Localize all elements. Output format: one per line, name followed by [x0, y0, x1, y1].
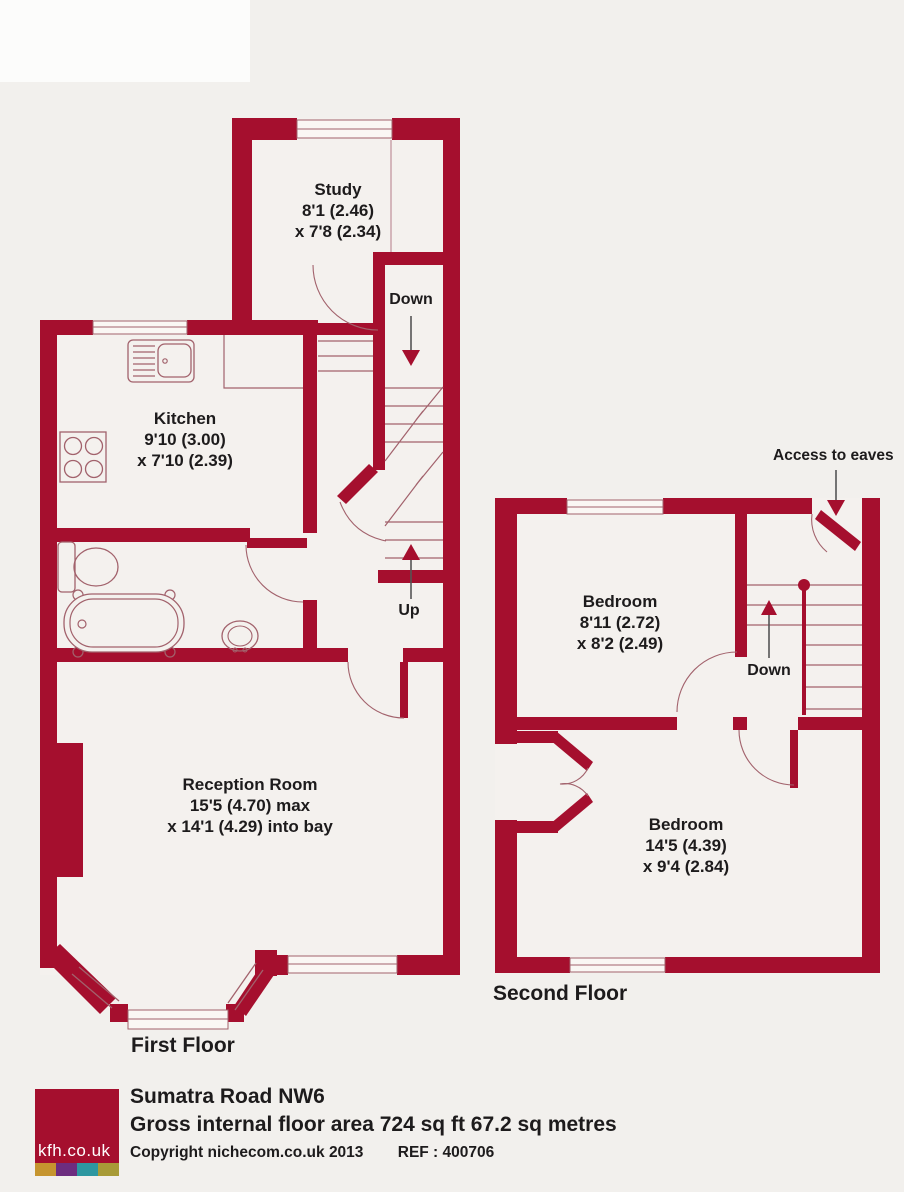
logo-strip-segment — [98, 1163, 119, 1176]
reception-room-label: Reception Room 15'5 (4.70) max x 14'1 (4… — [150, 774, 350, 837]
first-floor-title: First Floor — [131, 1034, 235, 1058]
property-title: Sumatra Road NW6 — [130, 1085, 325, 1109]
kfh-logo: kfh.co.uk — [35, 1089, 119, 1176]
floorplan-drawing — [0, 0, 904, 1192]
kitchen-window — [93, 321, 187, 334]
access-to-eaves-label: Access to eaves — [773, 447, 893, 465]
room-dimensions: x 9'4 (2.84) — [596, 856, 776, 877]
room-dimensions: 9'10 (3.00) — [95, 429, 275, 450]
logo-strip-segment — [77, 1163, 98, 1176]
second-floor-title: Second Floor — [493, 982, 627, 1006]
stairs-down-label-second: Down — [734, 662, 804, 680]
room-name: Kitchen — [95, 408, 275, 429]
reference-number: REF : 400706 — [398, 1144, 495, 1161]
second-floor-plan — [495, 470, 880, 973]
bathtub-icon — [64, 590, 184, 657]
room-dimensions: 8'11 (2.72) — [530, 612, 710, 633]
copyright-text: Copyright nichecom.co.uk 2013 — [130, 1144, 363, 1161]
floor-area-text: Gross internal floor area 724 sq ft 67.2… — [130, 1113, 617, 1137]
room-dimensions: 14'5 (4.39) — [596, 835, 776, 856]
bedroom1-window — [567, 500, 663, 514]
first-floor-plan — [40, 118, 460, 1029]
copyright-line: Copyright nichecom.co.uk 2013 REF : 4007… — [130, 1144, 494, 1162]
kfh-logo-text: kfh.co.uk — [38, 1141, 111, 1161]
room-dimensions: 8'1 (2.46) — [248, 200, 428, 221]
room-name: Bedroom — [596, 814, 776, 835]
bedroom1-room-label: Bedroom 8'11 (2.72) x 8'2 (2.49) — [530, 591, 710, 654]
floorplan-page: Study 8'1 (2.46) x 7'8 (2.34) Kitchen 9'… — [0, 0, 904, 1192]
study-room-label: Study 8'1 (2.46) x 7'8 (2.34) — [248, 179, 428, 242]
bedroom2-room-label: Bedroom 14'5 (4.39) x 9'4 (2.84) — [596, 814, 776, 877]
room-dimensions: x 7'10 (2.39) — [95, 450, 275, 471]
reception-window — [288, 956, 397, 973]
room-dimensions: x 14'1 (4.29) into bay — [150, 816, 350, 837]
kfh-logo-color-strip — [35, 1163, 119, 1176]
room-dimensions: x 8'2 (2.49) — [530, 633, 710, 654]
kfh-logo-square: kfh.co.uk — [35, 1089, 119, 1163]
room-dimensions: x 7'8 (2.34) — [248, 221, 428, 242]
footer: kfh.co.uk Sumatra Road NW6 Gross interna… — [0, 1082, 904, 1192]
room-dimensions: 15'5 (4.70) max — [150, 795, 350, 816]
stairs-up-label: Up — [379, 602, 439, 620]
bedroom2-window — [570, 958, 665, 972]
logo-strip-segment — [35, 1163, 56, 1176]
room-name: Reception Room — [150, 774, 350, 795]
stairs-down-label: Down — [376, 291, 446, 309]
room-name: Study — [248, 179, 428, 200]
room-name: Bedroom — [530, 591, 710, 612]
kitchen-room-label: Kitchen 9'10 (3.00) x 7'10 (2.39) — [95, 408, 275, 471]
logo-strip-segment — [56, 1163, 77, 1176]
study-window — [297, 120, 392, 138]
bay-window — [128, 1010, 228, 1029]
